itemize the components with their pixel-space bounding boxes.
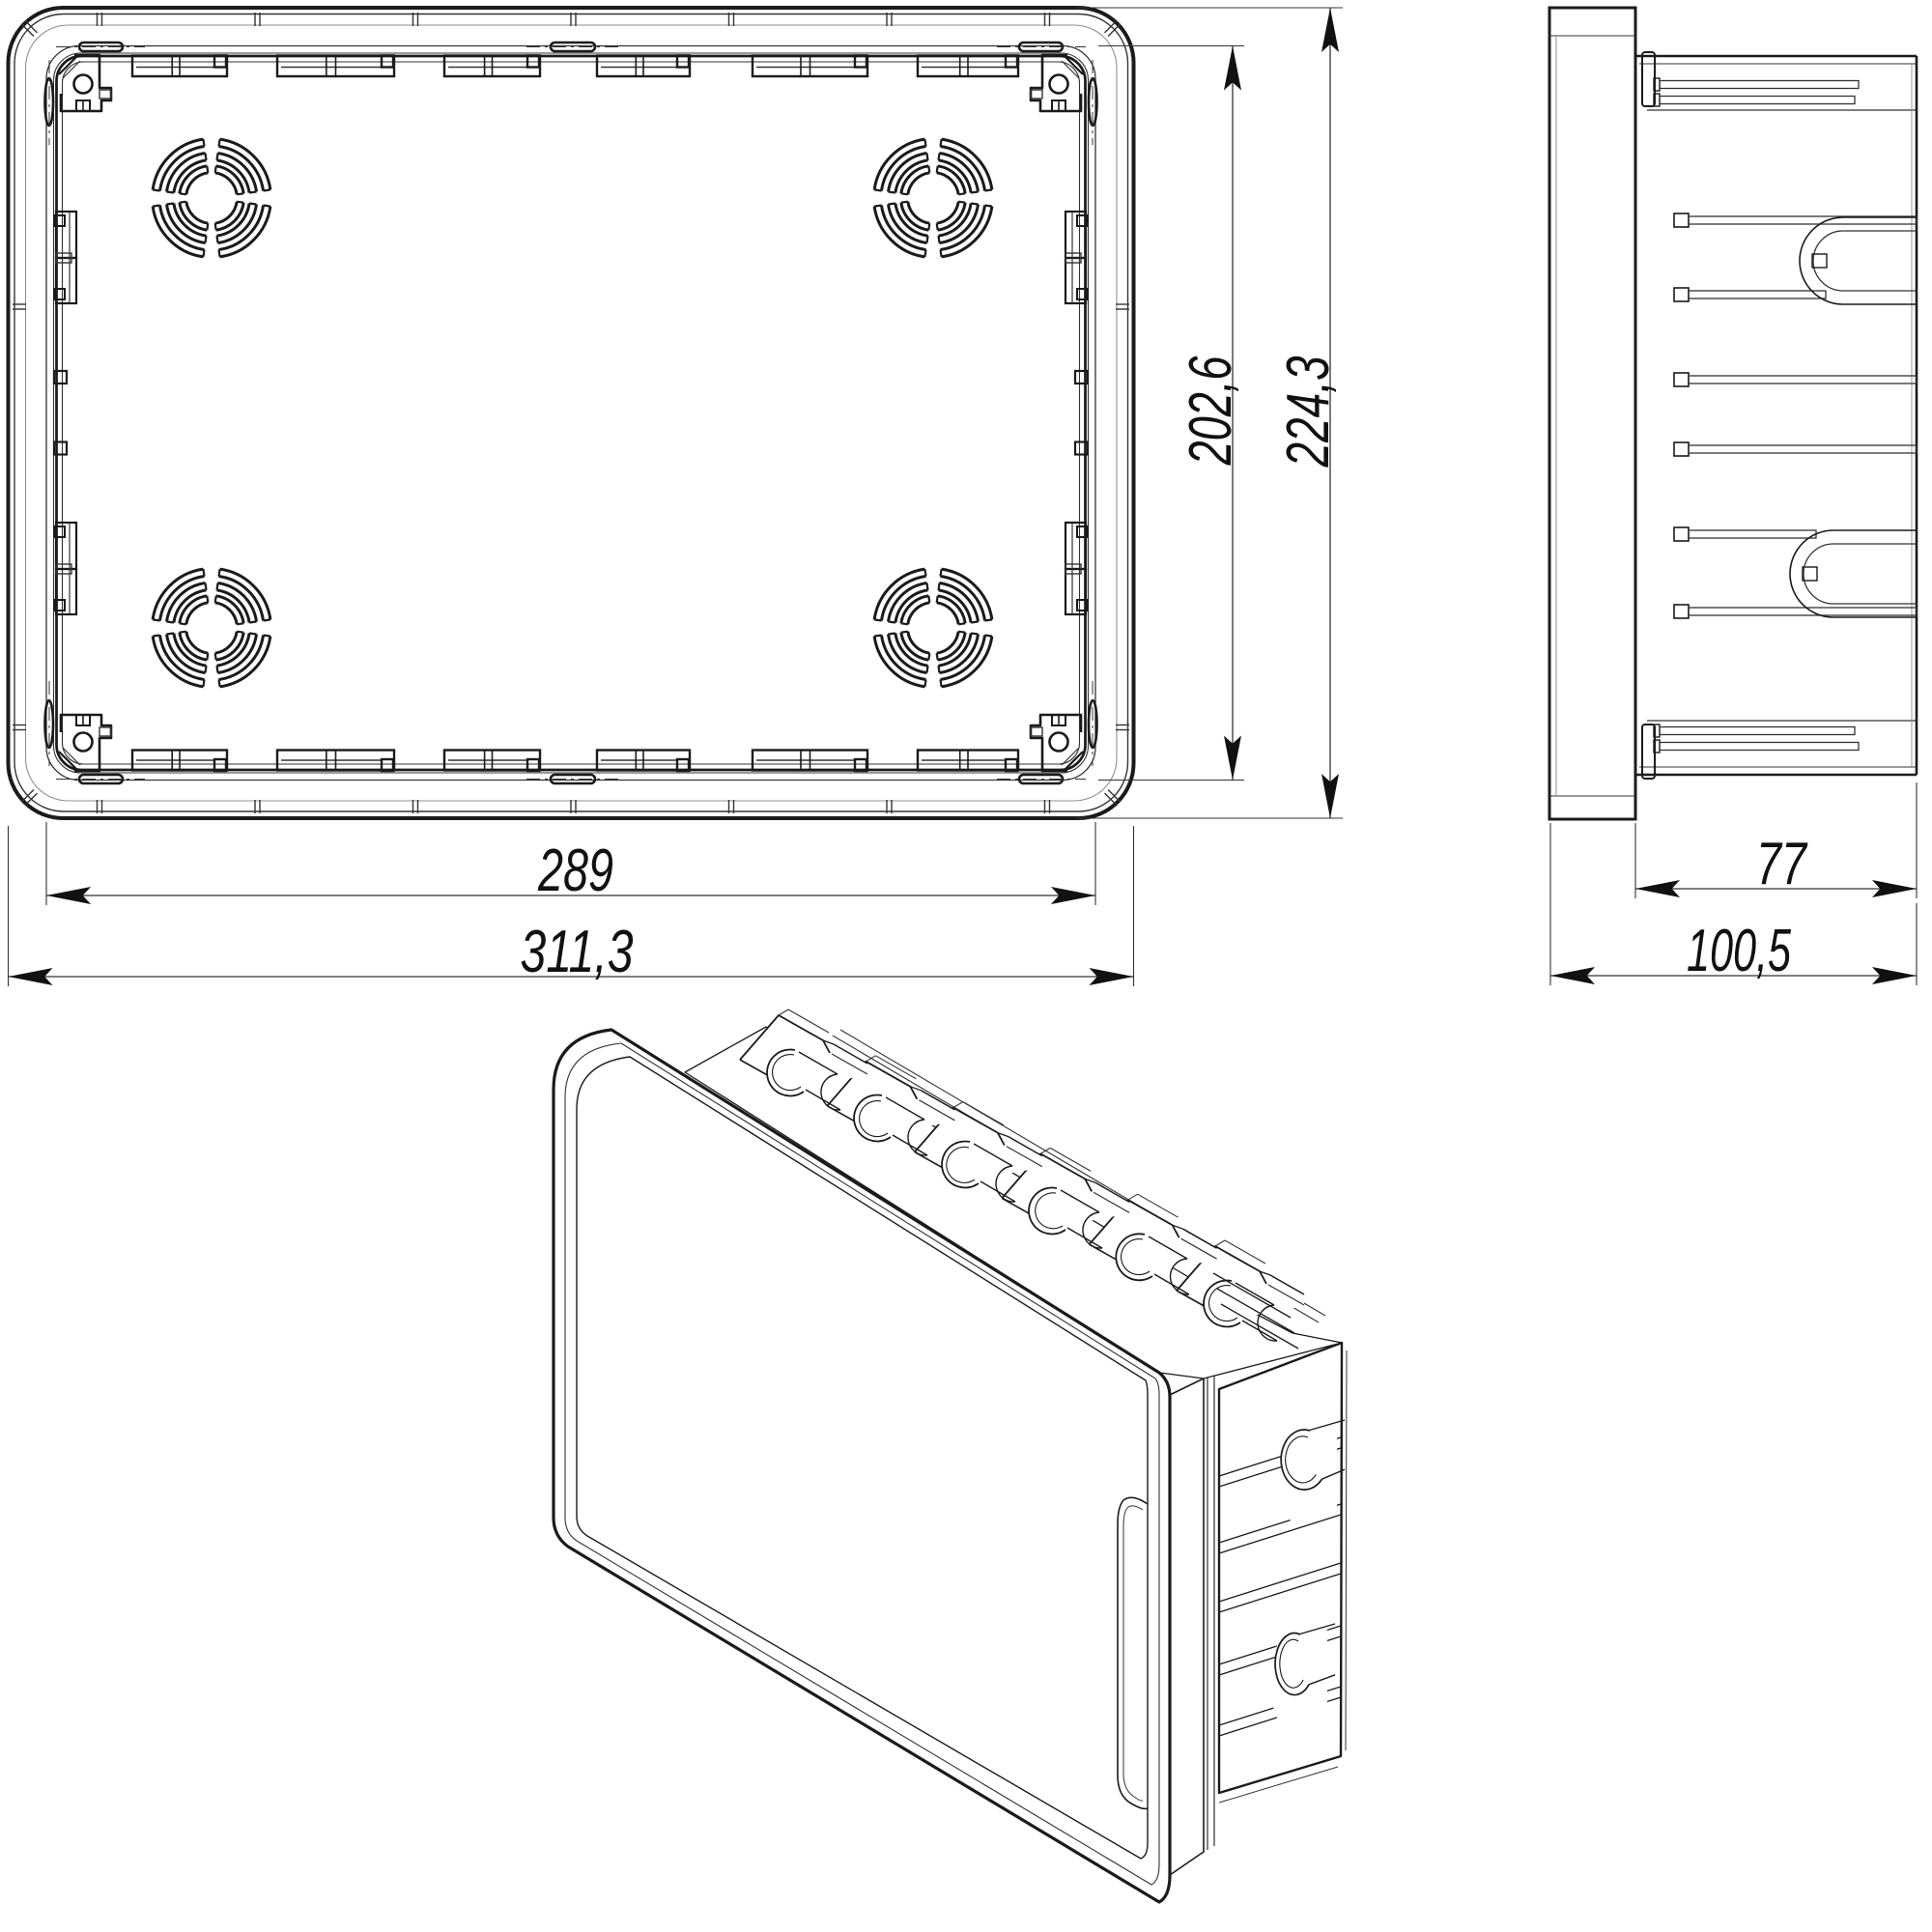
svg-text:311,3: 311,3 xyxy=(521,919,634,985)
svg-text:77: 77 xyxy=(1756,831,1808,897)
svg-text:289: 289 xyxy=(537,838,613,904)
svg-text:100,5: 100,5 xyxy=(1687,918,1791,984)
svg-text:224,3: 224,3 xyxy=(1275,356,1342,469)
svg-text:202,6: 202,6 xyxy=(1178,355,1244,466)
